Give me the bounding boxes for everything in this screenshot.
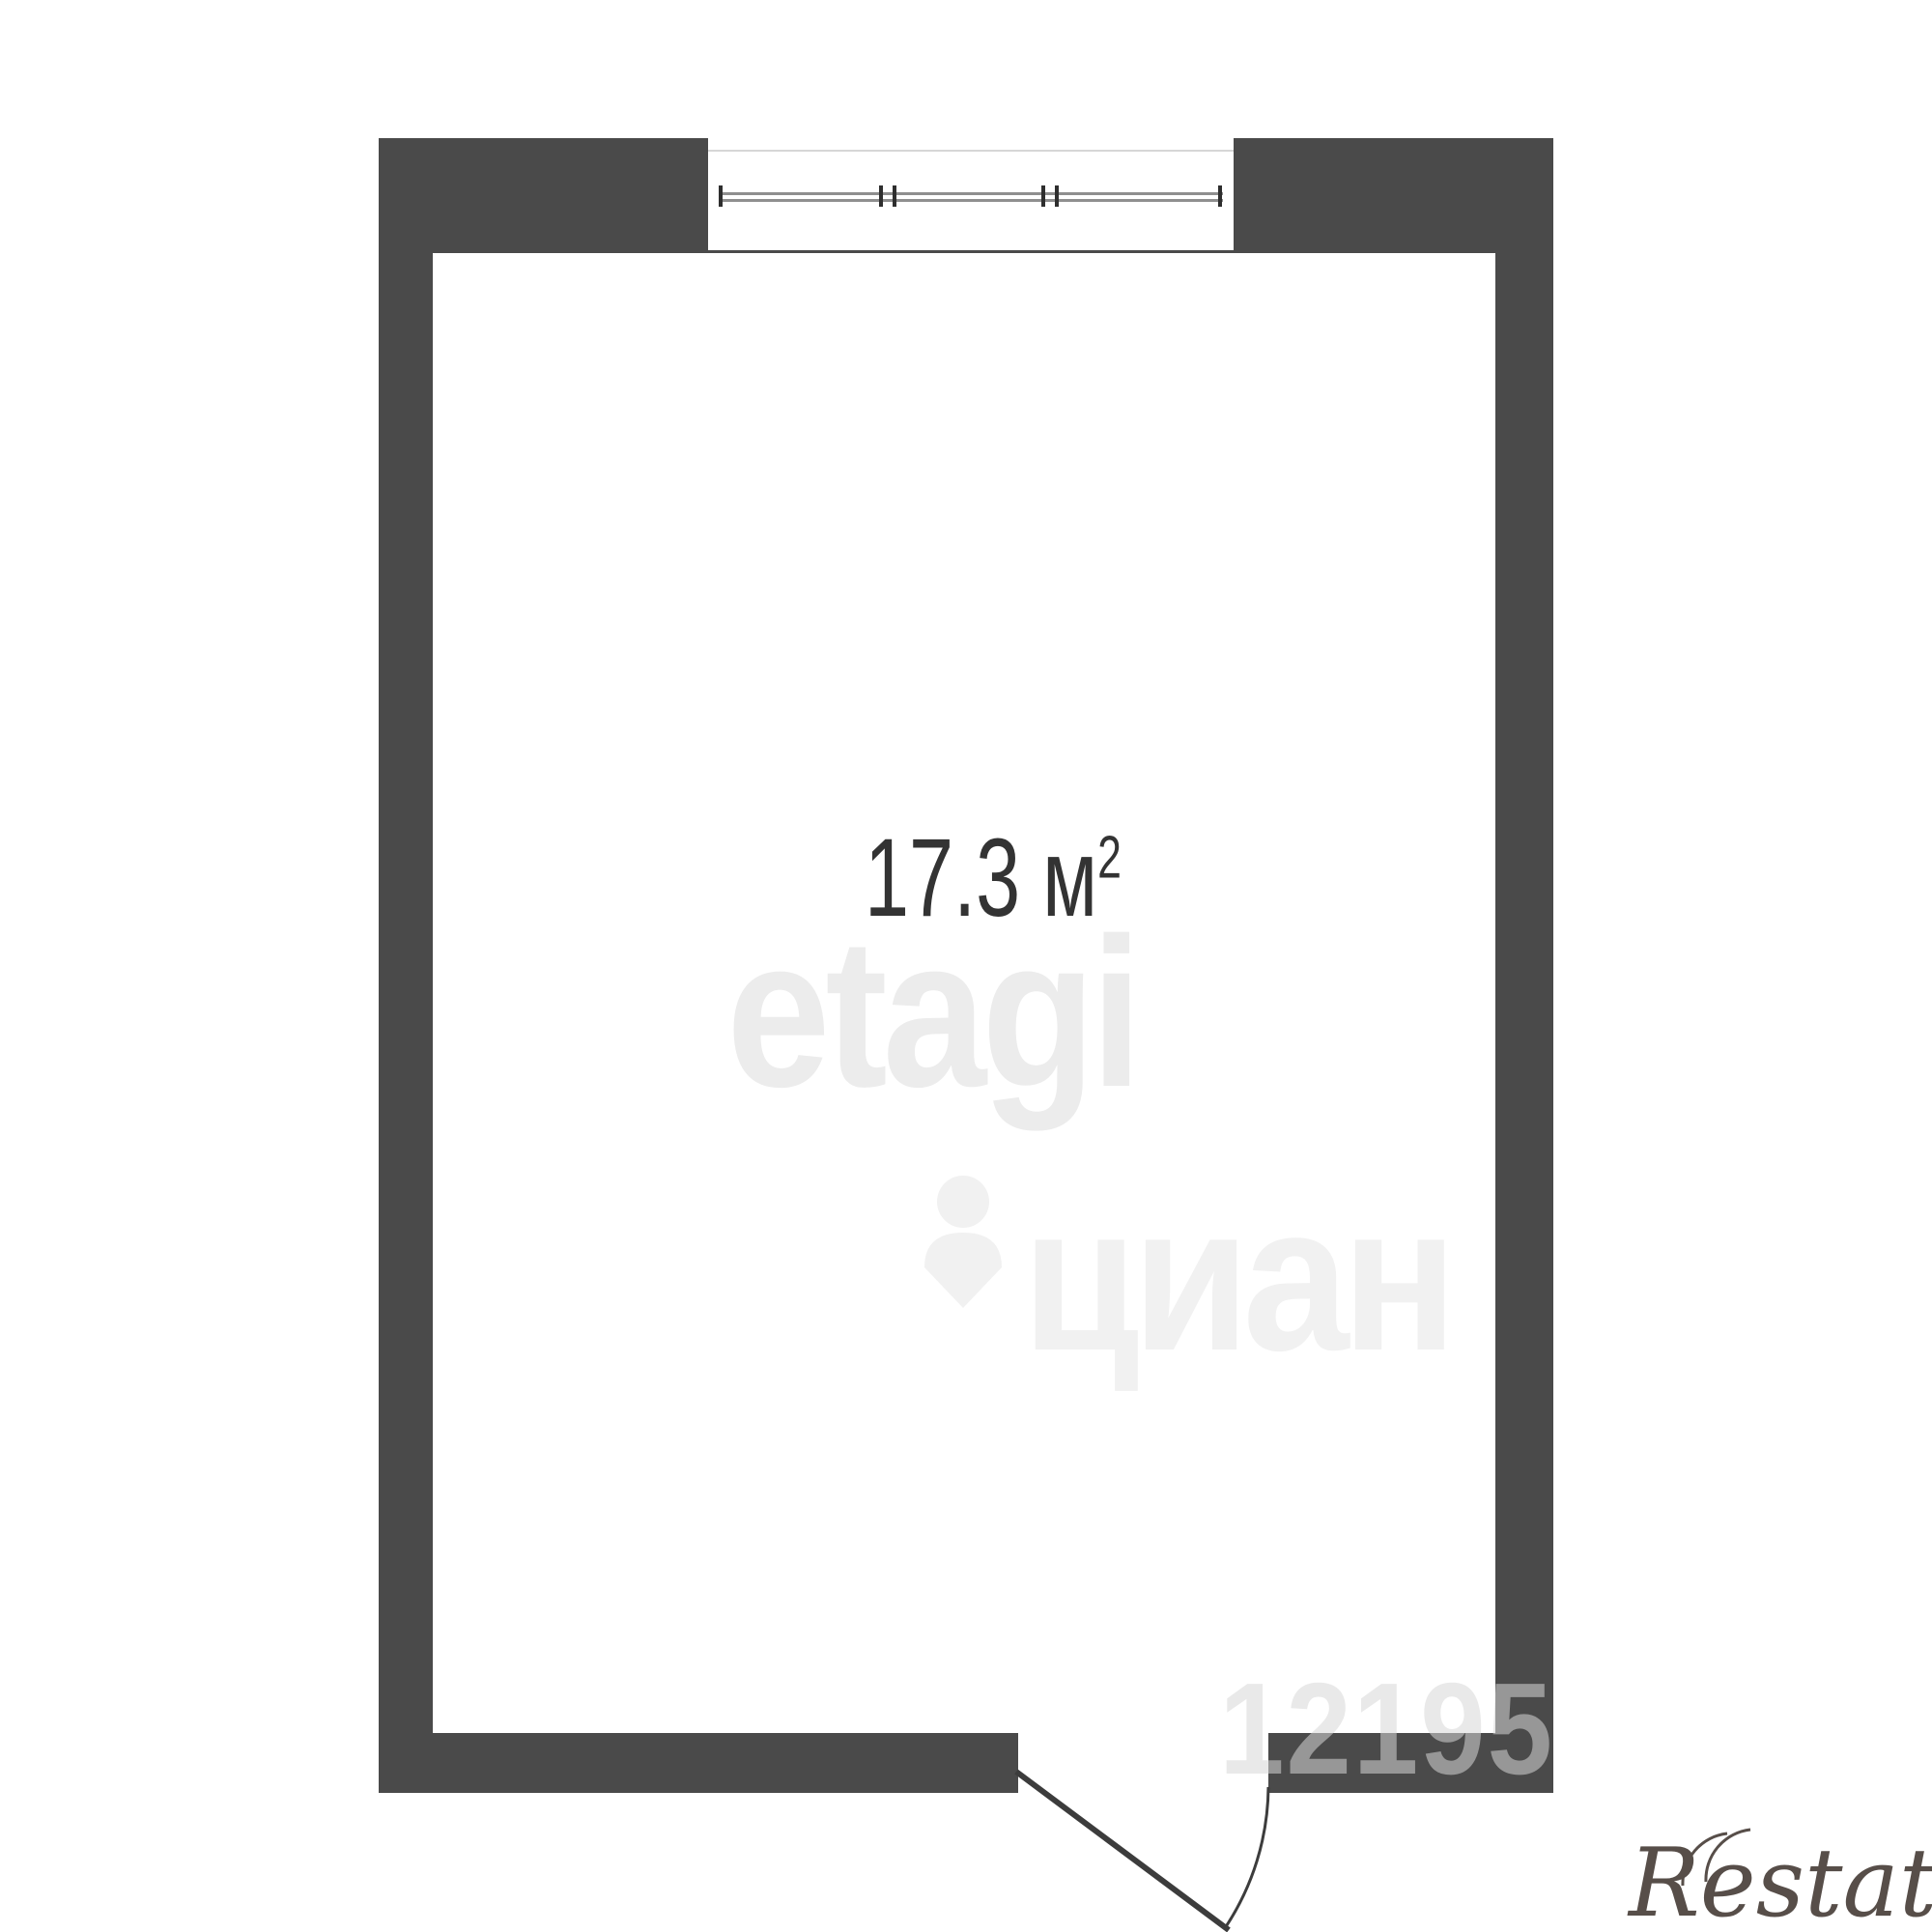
floor-plan-canvas: etagi циан 17.3 м2 12195 Restate xyxy=(0,0,1932,1932)
window-glazing-line xyxy=(720,199,1223,202)
door-swing-arc xyxy=(1225,1787,1268,1928)
window-mullion-tick xyxy=(893,185,896,207)
cian-pin-icon xyxy=(903,1171,1024,1311)
window-opening xyxy=(708,138,1234,253)
wall-left xyxy=(379,138,433,1793)
window-frame-tick xyxy=(1218,185,1222,207)
listing-id-watermark: 12195 xyxy=(1219,1663,1554,1794)
wall-bottom-left-segment xyxy=(379,1733,1018,1793)
window-mullion-tick xyxy=(1041,185,1045,207)
door-leaf xyxy=(1016,1772,1229,1930)
restate-arc-icon xyxy=(1706,1830,1750,1882)
wall-right xyxy=(1495,138,1553,1793)
room-area-label: 17.3 м2 xyxy=(865,823,1122,934)
window-mullion-tick xyxy=(1055,185,1059,207)
restate-arc-icon xyxy=(1683,1833,1727,1886)
room-area-value: 17.3 м xyxy=(865,816,1097,940)
window-outer-frame-line xyxy=(708,150,1234,152)
window-glazing-line xyxy=(720,192,1223,195)
cian-watermark: циан xyxy=(1022,1174,1450,1381)
room-area-exponent: 2 xyxy=(1097,825,1122,892)
window-frame-tick xyxy=(719,185,723,207)
window-mullion-tick xyxy=(879,185,883,207)
restate-logo-text: Restate xyxy=(1627,1829,1932,1932)
window-inner-wall-line xyxy=(708,250,1234,253)
